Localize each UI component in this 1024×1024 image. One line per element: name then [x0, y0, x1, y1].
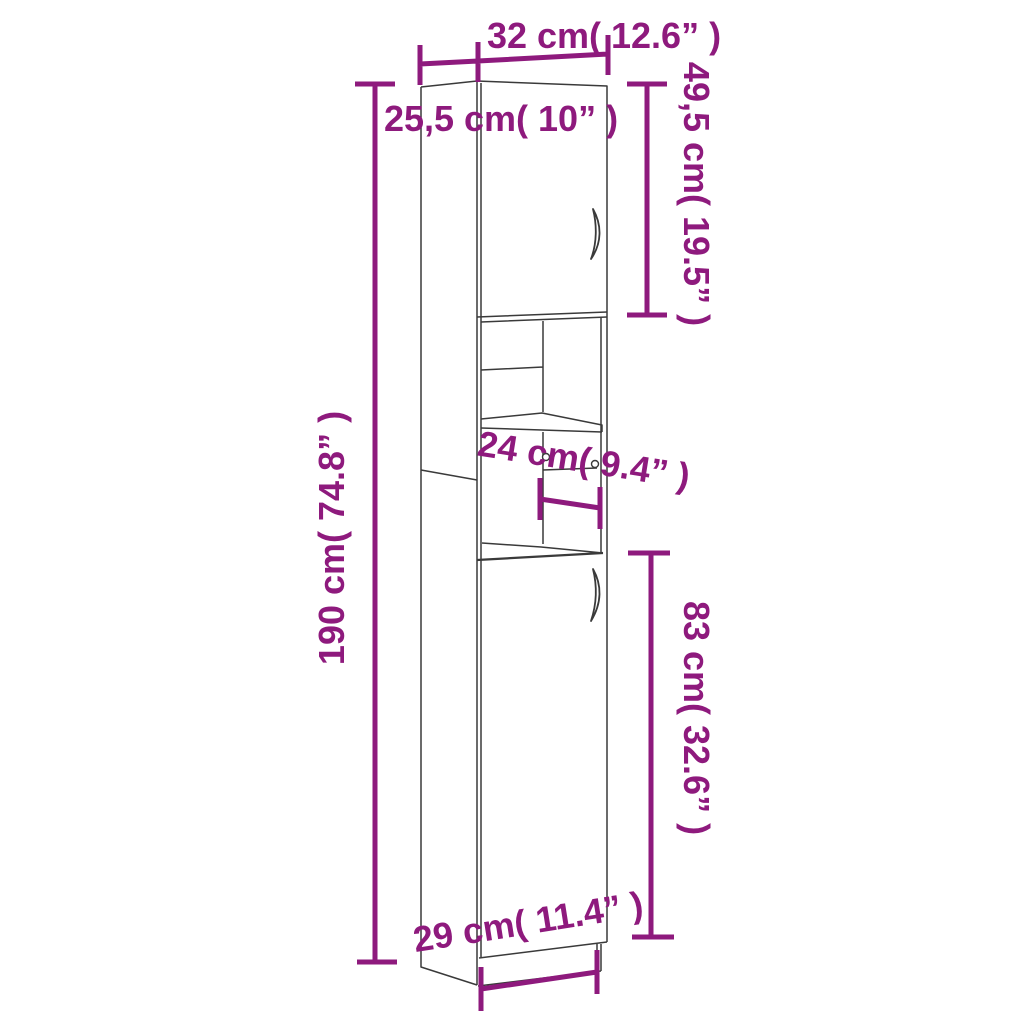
- dim-total-height-line: [355, 84, 397, 962]
- side-panel-seam: [421, 470, 477, 480]
- upper-door-handle: [591, 209, 600, 259]
- cabinet-dimension-drawing: 32 cm( 12.6” ) 25,5 cm( 10” ) 49,5 cm( 1…: [0, 0, 1024, 1024]
- dim-total-height: 190 cm( 74.8” ): [311, 84, 397, 962]
- dim-label-shelf-depth: 24 cm( 9.4” ): [475, 423, 693, 497]
- dim-lower-door-line: [628, 553, 674, 937]
- niche-floor: [482, 543, 603, 553]
- dimension-annotations: 32 cm( 12.6” ) 25,5 cm( 10” ) 49,5 cm( 1…: [311, 15, 721, 1011]
- lower-door-handle: [591, 569, 600, 621]
- cabinet-front-left-edge: [477, 81, 481, 985]
- dim-upper-door-line: [627, 84, 667, 315]
- dim-label-bottom-width: 29 cm( 11.4” ): [410, 883, 646, 960]
- dim-bottom-width-line: [481, 950, 597, 1011]
- dim-bottom-width: 29 cm( 11.4” ): [410, 883, 646, 1011]
- dim-upper-door-height: 49,5 cm( 19.5” ): [627, 62, 717, 326]
- upper-door-bottom-edge: [477, 312, 607, 322]
- dim-label-top-width: 32 cm( 12.6” ): [487, 15, 721, 56]
- dim-label-depth: 25,5 cm( 10” ): [384, 98, 618, 139]
- cabinet-outline: [421, 81, 607, 985]
- dimension-diagram: 32 cm( 12.6” ) 25,5 cm( 10” ) 49,5 cm( 1…: [0, 0, 1024, 1024]
- dim-label-lower-door-height: 83 cm( 32.6” ): [676, 601, 717, 835]
- dim-label-total-height: 190 cm( 74.8” ): [311, 411, 352, 665]
- dim-shelf-depth: 24 cm( 9.4” ): [475, 423, 693, 529]
- dim-lower-door-height: 83 cm( 32.6” ): [628, 553, 717, 937]
- lower-door-top-edge: [477, 553, 603, 560]
- cabinet-drawing: [421, 81, 607, 986]
- dim-shelf-depth-line: [540, 478, 600, 529]
- dim-label-upper-door-height: 49,5 cm( 19.5” ): [676, 62, 717, 326]
- dim-top-width: 32 cm( 12.6” ) 25,5 cm( 10” ): [384, 15, 721, 139]
